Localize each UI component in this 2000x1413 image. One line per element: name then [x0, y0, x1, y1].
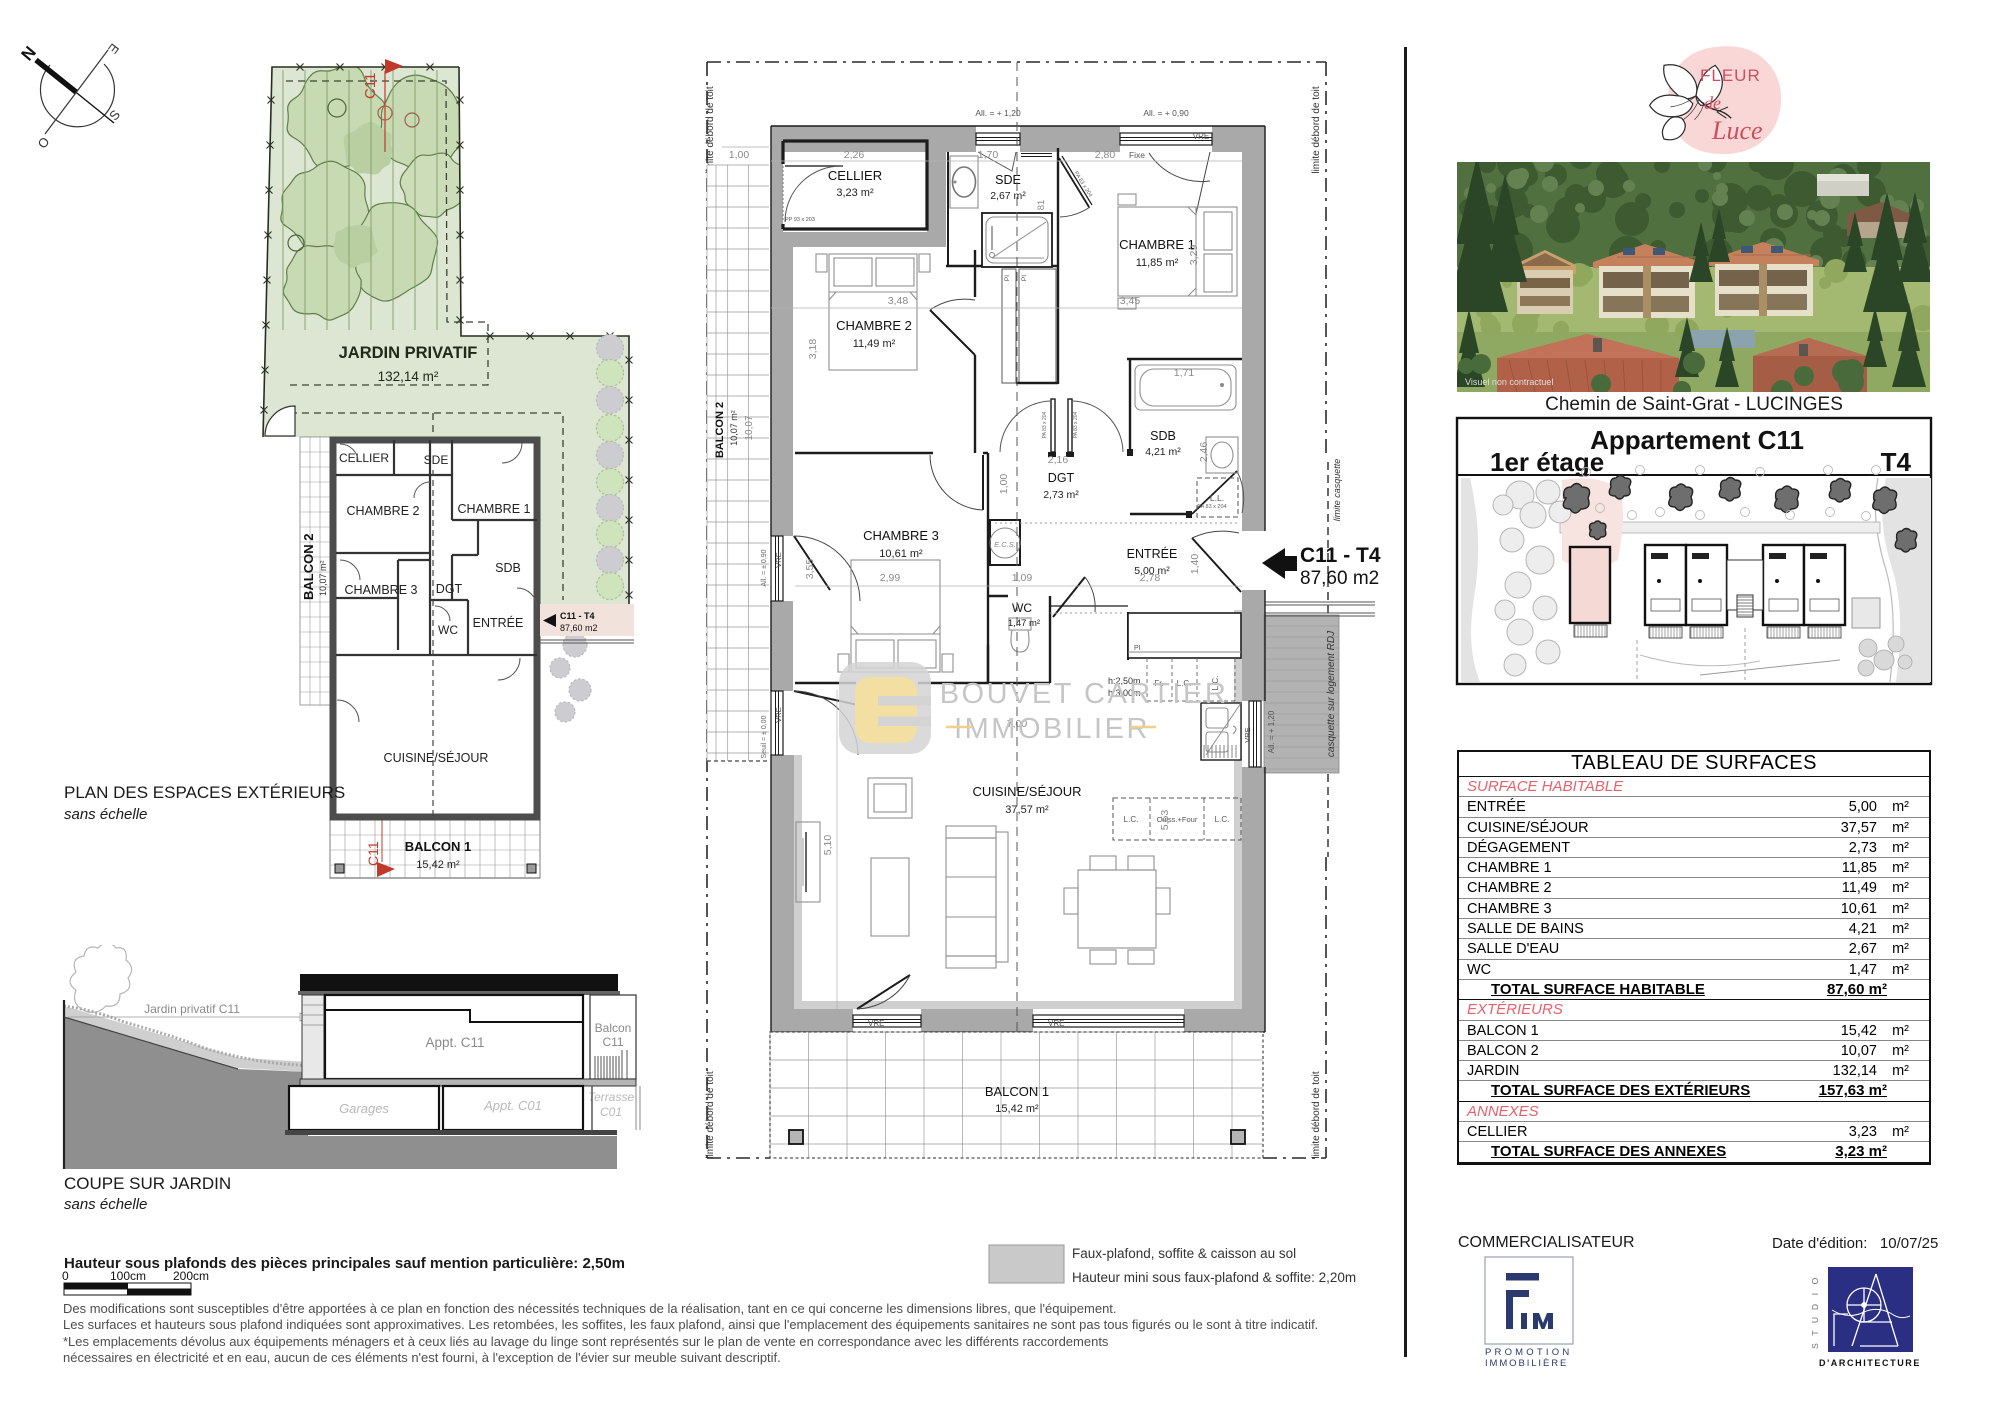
svg-text:10,61 m²: 10,61 m²: [879, 548, 923, 560]
svg-text:BALCON 1: BALCON 1: [405, 839, 471, 854]
svg-text:BOUVET CARTIER: BOUVET CARTIER: [940, 678, 1229, 710]
svg-text:132,14 m²: 132,14 m²: [378, 369, 439, 384]
svg-text:IMMOBILIÈRE: IMMOBILIÈRE: [1485, 1358, 1568, 1369]
svg-text:SDB: SDB: [1150, 429, 1176, 443]
svg-text:limite débord de toit: limite débord de toit: [705, 86, 716, 173]
svg-text:CELLIER: CELLIER: [828, 168, 882, 183]
svg-text:U: U: [1810, 1317, 1820, 1323]
svg-text:Garages: Garages: [339, 1101, 389, 1116]
svg-text:3,29: 3,29: [1188, 245, 1200, 266]
svg-text:1er étage: 1er étage: [1490, 447, 1604, 477]
svg-text:2,80: 2,80: [1095, 149, 1116, 161]
svg-text:WC: WC: [438, 623, 458, 637]
svg-text:D: D: [1810, 1304, 1820, 1310]
svg-text:2,26: 2,26: [844, 149, 865, 161]
svg-text:limite casquette: limite casquette: [1332, 459, 1342, 522]
svg-text:Visuel non contractuel: Visuel non contractuel: [1465, 377, 1553, 387]
svg-text:C11 - T4: C11 - T4: [560, 611, 595, 621]
svg-text:L.L.: L.L.: [1210, 493, 1224, 503]
svg-text:PP 93 x 203: PP 93 x 203: [785, 217, 815, 223]
svg-text:BALCON 2: BALCON 2: [301, 534, 316, 600]
svg-text:1,71: 1,71: [1174, 367, 1195, 379]
svg-text:Terrasse: Terrasse: [588, 1090, 635, 1104]
svg-text:E: E: [105, 41, 122, 57]
svg-text:1,40: 1,40: [1189, 554, 1201, 575]
svg-text:Balcon: Balcon: [595, 1021, 632, 1035]
svg-text:1,09: 1,09: [1012, 572, 1033, 584]
svg-text:PA 83 x 204: PA 83 x 204: [1042, 411, 1048, 438]
svg-text:S: S: [1810, 1343, 1820, 1349]
svg-text:DGT: DGT: [1048, 471, 1075, 485]
svg-text:VRE: VRE: [1243, 727, 1252, 742]
svg-text:Fixe: Fixe: [1129, 150, 1145, 160]
svg-text:11,85 m²: 11,85 m²: [1136, 257, 1179, 269]
svg-text:All. = ± 0,90: All. = ± 0,90: [761, 549, 768, 586]
svg-text:de: de: [1704, 93, 1721, 113]
svg-text:Jardin privatif C11: Jardin privatif C11: [144, 1002, 240, 1016]
svg-text:CELLIER: CELLIER: [339, 451, 389, 465]
svg-text:IMMOBILIER: IMMOBILIER: [954, 713, 1150, 745]
svg-text:T: T: [1810, 1330, 1820, 1335]
svg-text:5,10: 5,10: [822, 835, 834, 856]
svg-text:2,78: 2,78: [1140, 572, 1161, 584]
svg-text:limite débord de toit: limite débord de toit: [1311, 1071, 1322, 1158]
svg-text:15,42 m²: 15,42 m²: [995, 1103, 1039, 1115]
svg-text:FLEUR: FLEUR: [1700, 66, 1761, 85]
svg-text:CHAMBRE 3: CHAMBRE 3: [863, 528, 939, 543]
svg-text:C11: C11: [602, 1035, 623, 1049]
svg-text:VRE: VRE: [868, 1019, 884, 1028]
svg-text:Appt. C11: Appt. C11: [425, 1035, 484, 1050]
svg-text:Appartement C11: Appartement C11: [1590, 425, 1804, 455]
svg-text:C01: C01: [600, 1105, 622, 1119]
svg-text:O: O: [35, 134, 53, 151]
svg-text:BALCON 2: BALCON 2: [714, 402, 726, 458]
svg-text:2,46: 2,46: [1198, 442, 1210, 463]
svg-text:T4: T4: [1881, 447, 1912, 477]
svg-text:VRE: VRE: [1193, 132, 1209, 141]
svg-text:PI: PI: [1134, 645, 1141, 652]
svg-text:E.C.S.: E.C.S.: [994, 540, 1016, 549]
svg-text:VRE: VRE: [1048, 1019, 1064, 1028]
svg-text:C11 - T4: C11 - T4: [1300, 544, 1381, 567]
svg-text:87,60 m2: 87,60 m2: [560, 623, 598, 633]
svg-text:PI: PI: [1004, 275, 1011, 281]
svg-text:1,00: 1,00: [729, 149, 750, 161]
svg-text:D'ARCHITECTURE: D'ARCHITECTURE: [1819, 1358, 1921, 1368]
svg-text:L.C.: L.C.: [1215, 815, 1230, 824]
svg-text:SDB: SDB: [495, 561, 521, 575]
svg-text:All. = + 1,20: All. = + 1,20: [1267, 710, 1276, 753]
svg-text:limite débord de toit: limite débord de toit: [1311, 86, 1322, 173]
svg-text:Appt. C01: Appt. C01: [483, 1098, 542, 1113]
svg-text:3,48: 3,48: [888, 295, 909, 307]
svg-text:5,53: 5,53: [1159, 810, 1171, 831]
svg-text:DGT: DGT: [436, 582, 463, 596]
svg-text:VRE: VRE: [774, 552, 783, 567]
svg-text:C11: C11: [362, 73, 379, 99]
svg-text:BALCON 1: BALCON 1: [985, 1084, 1049, 1099]
svg-text:casquette sur logement RDJ: casquette sur logement RDJ: [1326, 630, 1337, 757]
svg-text:CHAMBRE 2: CHAMBRE 2: [836, 318, 912, 333]
svg-text:WC: WC: [1012, 601, 1032, 615]
svg-text:2,67 m²: 2,67 m²: [990, 190, 1026, 202]
svg-text:2,73 m²: 2,73 m²: [1043, 489, 1079, 501]
svg-text:CUISINE/SÉJOUR: CUISINE/SÉJOUR: [384, 750, 489, 765]
svg-text:81: 81: [1036, 200, 1047, 211]
svg-text:10,07 m²: 10,07 m²: [318, 560, 328, 596]
svg-text:All. = + 0,90: All. = + 0,90: [1143, 108, 1189, 118]
svg-text:10,07 m²: 10,07 m²: [729, 410, 739, 446]
svg-text:3,45: 3,45: [1120, 295, 1141, 307]
svg-text:1,47 m²: 1,47 m²: [1008, 618, 1040, 629]
svg-text:CHAMBRE 1: CHAMBRE 1: [1119, 237, 1195, 252]
svg-text:O: O: [1810, 1277, 1820, 1284]
svg-text:87,60 m2: 87,60 m2: [1300, 568, 1379, 589]
svg-text:CUISINE/SÉJOUR: CUISINE/SÉJOUR: [972, 784, 1081, 799]
svg-text:PI: PI: [1021, 275, 1028, 281]
svg-text:ENTRÉE: ENTRÉE: [473, 615, 524, 630]
svg-text:15,42 m²: 15,42 m²: [416, 859, 460, 871]
svg-text:VRE: VRE: [774, 707, 783, 722]
svg-text:1,70: 1,70: [978, 149, 999, 161]
svg-text:limite débord de toit: limite débord de toit: [705, 1071, 716, 1158]
svg-text:11,49 m²: 11,49 m²: [853, 338, 896, 350]
svg-text:3,18: 3,18: [807, 339, 819, 360]
svg-text:L.C.: L.C.: [1124, 815, 1139, 824]
svg-text:CHAMBRE 3: CHAMBRE 3: [345, 583, 418, 597]
svg-text:I: I: [1810, 1293, 1820, 1295]
svg-text:3,55: 3,55: [804, 559, 816, 580]
svg-text:PROMOTION: PROMOTION: [1485, 1347, 1572, 1358]
svg-text:37,57 m²: 37,57 m²: [1005, 804, 1049, 816]
svg-text:PA 83 x 204: PA 83 x 204: [1197, 504, 1226, 510]
svg-text:4,21 m²: 4,21 m²: [1145, 446, 1181, 458]
svg-text:3,23 m²: 3,23 m²: [836, 187, 874, 199]
svg-text:JARDIN PRIVATIF: JARDIN PRIVATIF: [339, 344, 478, 362]
svg-text:Seuil = ± 0,00: Seuil = ± 0,00: [761, 715, 768, 758]
svg-text:1,00: 1,00: [998, 474, 1010, 495]
svg-text:SDE: SDE: [424, 453, 449, 467]
svg-text:10,07: 10,07: [744, 415, 755, 440]
svg-text:2,16: 2,16: [1048, 454, 1069, 466]
svg-text:All. = + 1,20: All. = + 1,20: [975, 108, 1021, 118]
svg-text:CHAMBRE 2: CHAMBRE 2: [347, 504, 420, 518]
svg-text:PA 83 x 204: PA 83 x 204: [1073, 411, 1079, 438]
svg-text:2,99: 2,99: [880, 572, 901, 584]
svg-text:Luce: Luce: [1711, 116, 1763, 145]
svg-text:C11: C11: [365, 841, 381, 866]
svg-text:S: S: [106, 107, 123, 124]
svg-text:ENTRÉE: ENTRÉE: [1127, 546, 1178, 561]
svg-text:CHAMBRE 1: CHAMBRE 1: [458, 502, 531, 516]
